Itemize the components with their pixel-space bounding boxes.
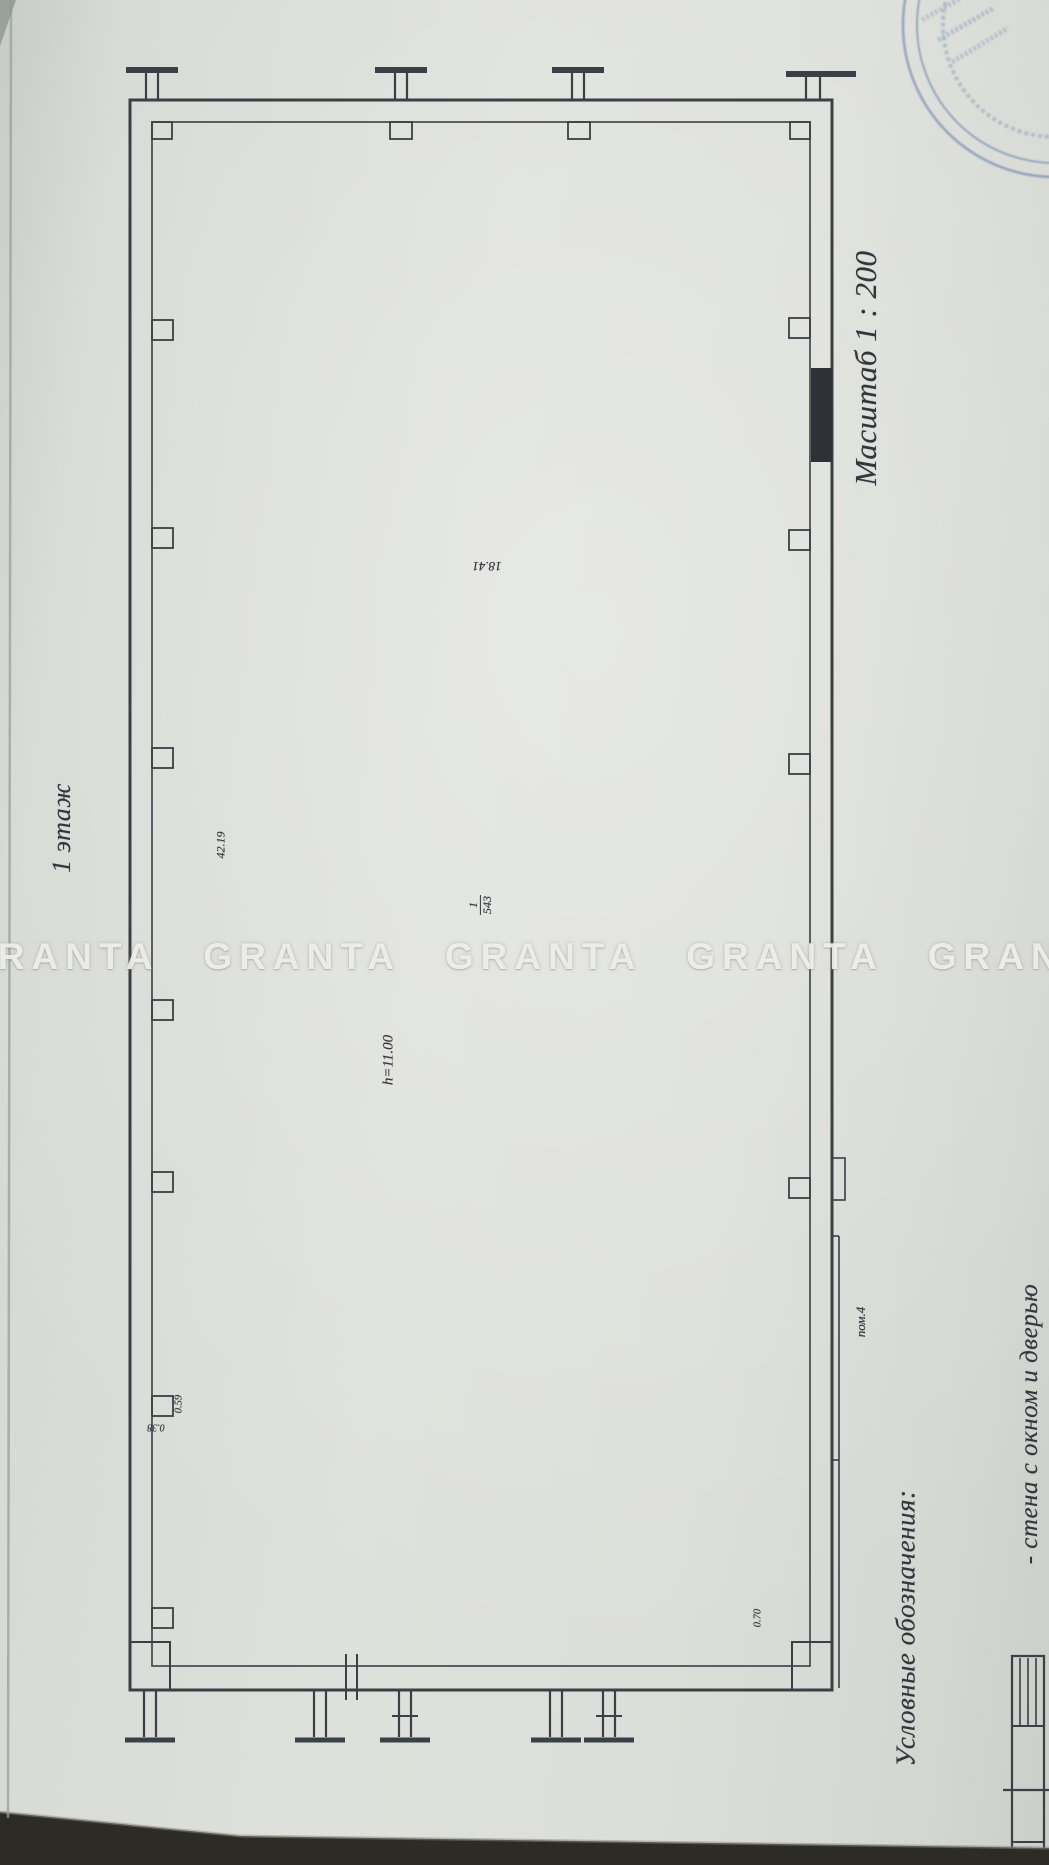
legend-title: Условные обозначения: bbox=[891, 1489, 922, 1766]
scanned-floor-plan-photo: 1 этаж Масштаб 1 : 200 Условные обозначе… bbox=[0, 0, 1049, 1865]
granta-watermark: GRANTA GRANTA GRANTA GRANTA GRANTA GRANT… bbox=[0, 936, 1049, 978]
bottom-column-marks bbox=[125, 1654, 634, 1740]
room-number-area-fraction: 1 543 bbox=[467, 895, 493, 915]
top-column-marks bbox=[126, 70, 856, 100]
dimension-small-c: 0.70 bbox=[753, 1609, 764, 1627]
fraction-denominator: 543 bbox=[481, 895, 494, 915]
room-label: пом.4 bbox=[853, 1307, 869, 1338]
dimension-small-a: 0.59 bbox=[174, 1395, 185, 1413]
dimension-width: 18.41 bbox=[472, 558, 501, 574]
top-wall-pilasters bbox=[152, 122, 810, 139]
dimension-small-b: 0.38 bbox=[147, 1422, 165, 1433]
legend-item-label: - стена с окном и дверью bbox=[1016, 1284, 1044, 1565]
dimension-length: 42.19 bbox=[214, 832, 229, 859]
round-stamp bbox=[903, 0, 1049, 177]
wall-window-door-symbol bbox=[1003, 1656, 1049, 1852]
right-wall-pilasters bbox=[789, 318, 810, 1198]
fraction-numerator: 1 bbox=[467, 895, 481, 915]
scale-label: Масштаб 1 : 200 bbox=[848, 251, 884, 486]
floor-label: 1 этаж bbox=[47, 783, 77, 873]
ceiling-height-label: h=11.00 bbox=[381, 1035, 398, 1085]
right-wall-door-band bbox=[811, 368, 832, 462]
right-wall-step bbox=[832, 1158, 845, 1688]
